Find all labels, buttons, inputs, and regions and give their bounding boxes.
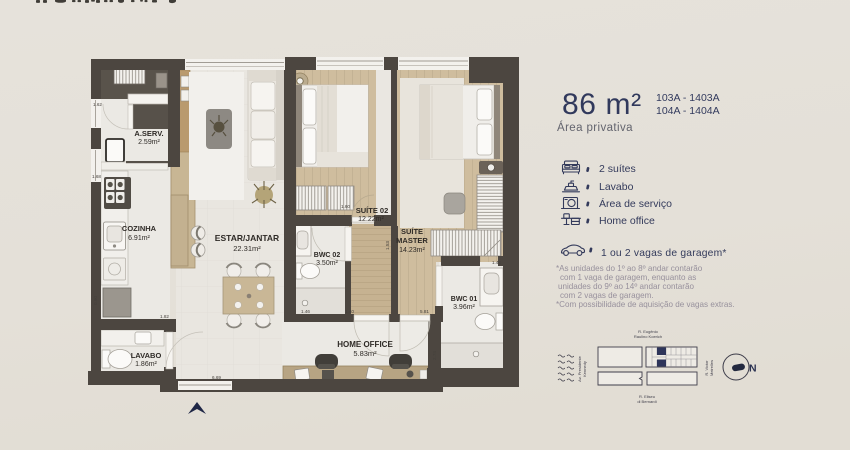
svg-text:COZINHA: COZINHA [122, 224, 157, 233]
svg-text:3.96m²: 3.96m² [453, 304, 475, 311]
svg-text:6.91m²: 6.91m² [128, 235, 150, 242]
svg-text:0.90: 0.90 [93, 296, 98, 305]
svg-text:Área privativa: Área privativa [557, 121, 633, 134]
svg-text:86 m²: 86 m² [562, 88, 642, 121]
svg-text:*Com possibilidade de aquisiçã: *Com possibilidade de aquisição de vagas… [556, 300, 735, 309]
svg-text:5.83m²: 5.83m² [353, 349, 377, 358]
svg-text:1.53: 1.53 [385, 241, 390, 250]
svg-text:*As unidades do 1º ao 8º andar: *As unidades do 1º ao 8º andar contarão [556, 264, 703, 273]
svg-text:SUÍTE 02: SUÍTE 02 [356, 206, 389, 215]
svg-text:unidades do 9º ao 14º andar co: unidades do 9º ao 14º andar contarão [558, 282, 694, 291]
svg-text:5.81: 5.81 [420, 309, 429, 314]
svg-text:1.86m²: 1.86m² [135, 361, 157, 368]
svg-text:Lavabo: Lavabo [599, 181, 634, 193]
svg-text:LAVABO: LAVABO [131, 351, 162, 360]
svg-text:1.82: 1.82 [160, 314, 169, 319]
svg-text:104A - 1404A: 104A - 1404A [656, 105, 720, 117]
svg-text:3.50m²: 3.50m² [316, 260, 338, 267]
svg-text:6.69: 6.69 [212, 375, 221, 380]
svg-text:1.40: 1.40 [345, 309, 354, 314]
svg-text:A.SERV.: A.SERV. [134, 129, 163, 138]
svg-text:Meirelles: Meirelles [709, 360, 714, 376]
svg-text:1.46: 1.46 [301, 309, 310, 314]
svg-text:Home office: Home office [599, 215, 655, 227]
svg-text:com 2 vagas de garagem.: com 2 vagas de garagem. [560, 291, 654, 300]
svg-text:2.59m²: 2.59m² [138, 139, 160, 146]
svg-text:di Bernardi: di Bernardi [637, 399, 656, 404]
svg-text:1.48: 1.48 [492, 260, 501, 265]
svg-text:N: N [749, 363, 757, 375]
svg-text:SUÍTE: SUÍTE [401, 227, 423, 236]
svg-text:ESTAR/JANTAR: ESTAR/JANTAR [215, 233, 279, 243]
svg-text:Raulino Koerich: Raulino Koerich [634, 334, 662, 339]
svg-text:103A - 1403A: 103A - 1403A [656, 92, 720, 104]
svg-text:2 suítes: 2 suítes [599, 163, 636, 175]
svg-text:Área de serviço: Área de serviço [599, 197, 672, 210]
svg-text:22.31m²: 22.31m² [233, 244, 261, 253]
svg-text:2.74: 2.74 [432, 351, 437, 360]
svg-text:1.62: 1.62 [93, 102, 102, 107]
svg-text:1.60: 1.60 [341, 204, 350, 209]
svg-text:14.23m²: 14.23m² [399, 247, 425, 254]
svg-text:HOME OFFICE: HOME OFFICE [337, 340, 393, 349]
svg-text:12.22m²: 12.22m² [358, 216, 384, 223]
svg-text:Kennedy: Kennedy [582, 361, 587, 377]
svg-text:1 ou 2 vagas de garagem*: 1 ou 2 vagas de garagem* [601, 248, 727, 259]
svg-text:BWC 02: BWC 02 [314, 252, 341, 259]
svg-text:1.68: 1.68 [92, 174, 101, 179]
svg-text:BWC 01: BWC 01 [451, 296, 478, 303]
svg-text:MASTER: MASTER [396, 236, 428, 245]
svg-text:com 1 vaga de garagem, enquant: com 1 vaga de garagem, enquanto as [560, 273, 696, 282]
